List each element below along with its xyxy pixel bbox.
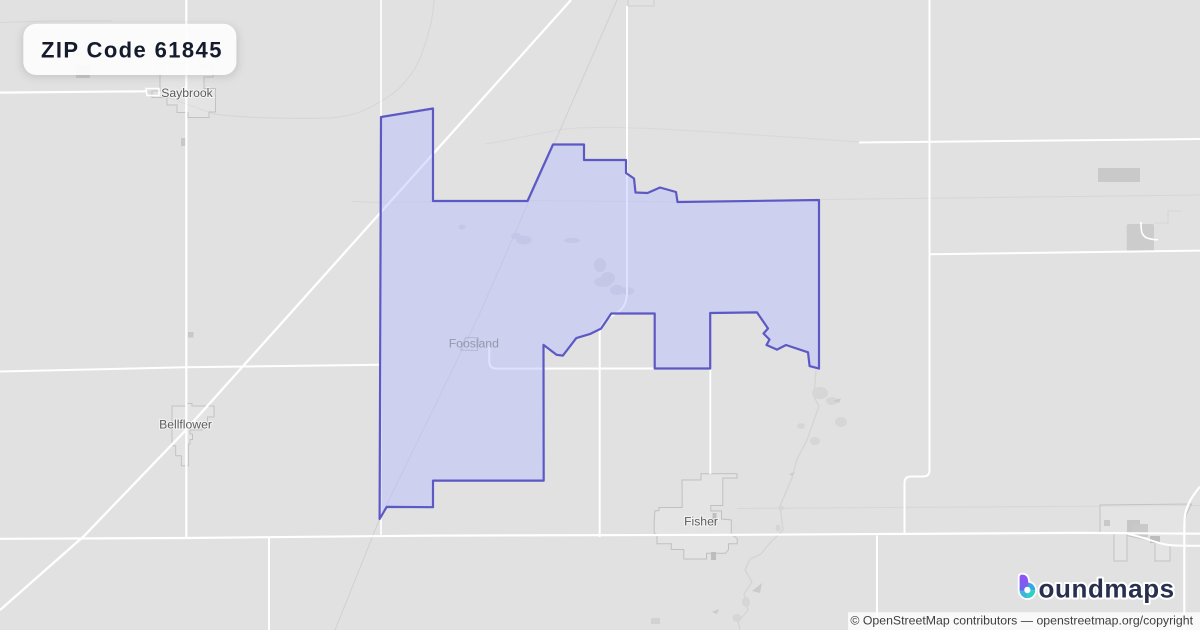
svg-text:ZIP Code 61845: ZIP Code 61845 [41,37,223,62]
svg-text:Fisher: Fisher [684,514,718,528]
svg-text:Foosland: Foosland [449,337,499,351]
svg-text:Saybrook: Saybrook [161,86,213,100]
svg-text:oundmaps: oundmaps [1039,573,1175,603]
svg-text:© OpenStreetMap contributors —: © OpenStreetMap contributors — openstree… [850,614,1193,628]
svg-text:Bellflower: Bellflower [159,418,212,432]
